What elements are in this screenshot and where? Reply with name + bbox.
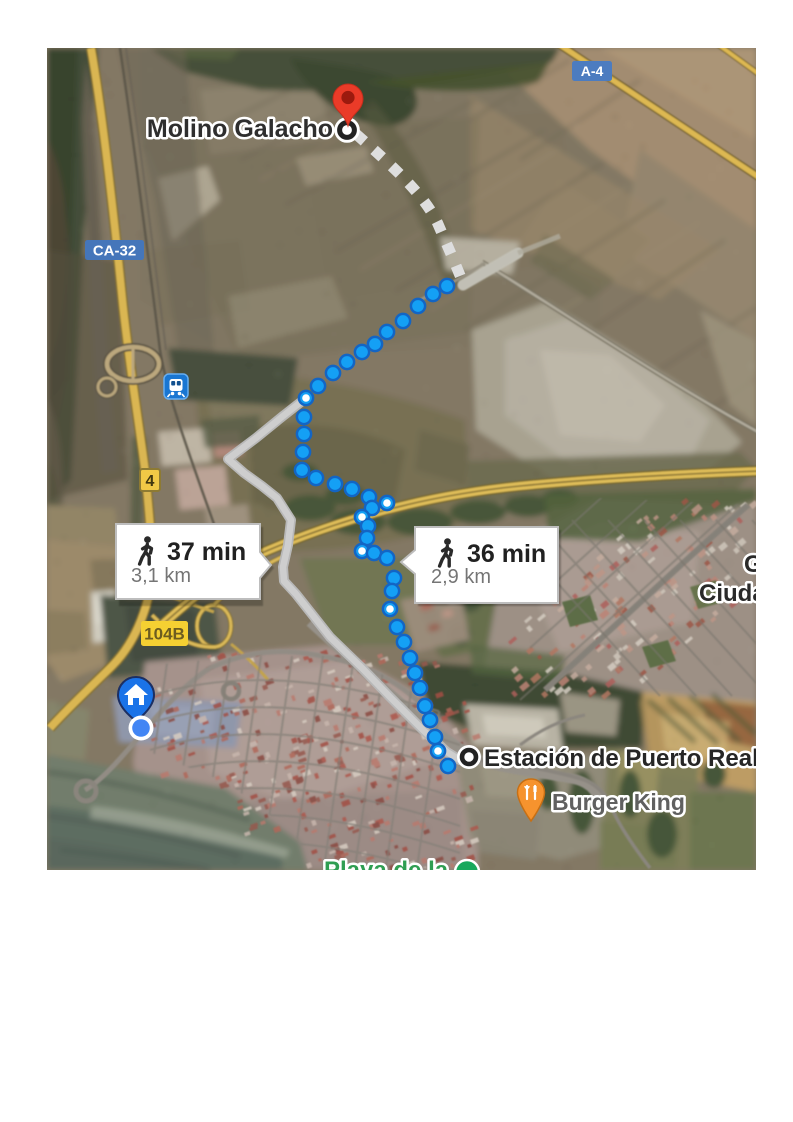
svg-text:Ciudad: Ciudad — [699, 580, 756, 607]
svg-text:104B: 104B — [144, 625, 185, 644]
svg-text:3,1 km: 3,1 km — [131, 565, 191, 587]
svg-text:37 min: 37 min — [167, 538, 246, 566]
svg-text:CA-32: CA-32 — [93, 243, 136, 260]
svg-text:Playa de la: Playa de la — [324, 857, 449, 870]
svg-text:G: G — [744, 551, 756, 578]
svg-text:2,9 km: 2,9 km — [431, 566, 491, 588]
svg-text:A-4: A-4 — [581, 63, 604, 79]
svg-text:Estación de Puerto Real: Estación de Puerto Real — [484, 745, 756, 772]
svg-text:Burger King: Burger King — [552, 789, 685, 815]
svg-text:4: 4 — [146, 473, 155, 490]
svg-text:Molino Galacho: Molino Galacho — [147, 115, 333, 143]
svg-text:36 min: 36 min — [467, 540, 546, 568]
